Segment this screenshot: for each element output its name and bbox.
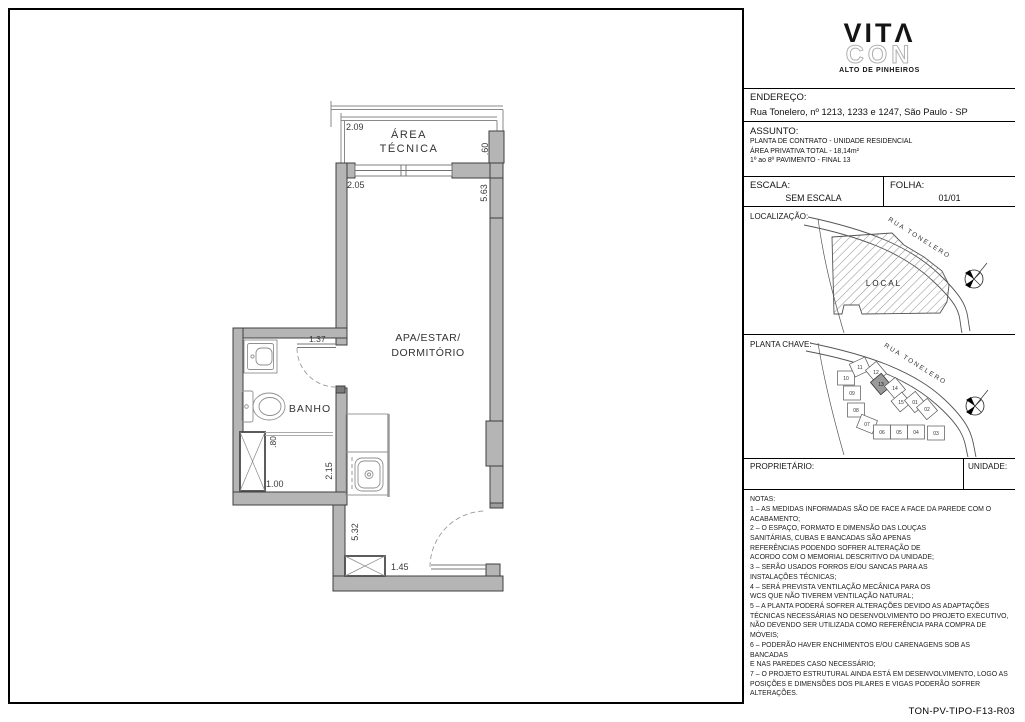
- bath-door: [297, 344, 336, 387]
- living-label-line2: DORMITÓRIO: [391, 346, 464, 359]
- nota-line: NÃO DEVENDO SER UTILIZADA COMO REFERÊNCI…: [750, 621, 1009, 631]
- north-compass-icon: [965, 263, 987, 288]
- logo-con-text: CON: [846, 45, 914, 66]
- localizacao-map: LOCAL RUA TONELERO: [744, 207, 1017, 333]
- planta-chave-section: PLANTA CHAVE: 10 11 12 13 14: [744, 335, 1015, 459]
- escala-folha-row: ESCALA: SEM ESCALA FOLHA: 01/01: [744, 177, 1015, 207]
- escala-label: ESCALA:: [750, 180, 877, 191]
- planta-chave-map: 10 11 12 13 14 15 01 02 09 08: [744, 335, 1017, 457]
- vanity-sink: [244, 340, 277, 373]
- escala-cell: ESCALA: SEM ESCALA: [744, 177, 884, 206]
- assunto-line: ÁREA PRIVATIVA TOTAL - 18,14m²: [750, 147, 1009, 156]
- svg-text:12: 12: [873, 370, 879, 376]
- nota-line: ACABAMENTO;: [750, 515, 1009, 525]
- notas-label: NOTAS:: [750, 495, 1009, 505]
- endereco-label: ENDEREÇO:: [750, 92, 1009, 103]
- folha-label: FOLHA:: [890, 180, 1009, 191]
- nota-line: MÓVEIS;: [750, 631, 1009, 641]
- endereco-section: ENDEREÇO: Rua Tonelero, nº 1213, 1233 e …: [744, 89, 1015, 123]
- nota-line: 3 – SERÃO USADOS FORROS E/OU SANCAS PARA…: [750, 563, 1009, 573]
- svg-text:13: 13: [878, 382, 884, 388]
- living-label-line1: APA/ESTAR/: [395, 332, 460, 344]
- kitchen-counter: [346, 414, 389, 497]
- endereco-value: Rua Tonelero, nº 1213, 1233 e 1247, São …: [750, 107, 1009, 117]
- nota-line: ALTERAÇÕES.: [750, 689, 1009, 699]
- svg-text:15: 15: [898, 400, 904, 406]
- title-block: VITΛ CON ALTO DE PINHEIROS ENDEREÇO: Rua…: [742, 8, 1015, 704]
- dim-shower-width: .80: [268, 436, 278, 448]
- svg-text:05: 05: [896, 430, 902, 436]
- dim-bath-width: 1.00: [266, 479, 284, 489]
- assunto-label: ASSUNTO:: [750, 126, 1009, 137]
- folha-value: 01/01: [890, 193, 1009, 203]
- svg-text:01: 01: [912, 400, 918, 406]
- assunto-section: ASSUNTO: PLANTA DE CONTRATO - UNIDADE RE…: [744, 122, 1015, 177]
- shower-box: [240, 432, 265, 491]
- svg-text:07: 07: [864, 422, 870, 428]
- dim-bath-door: 1.37: [309, 334, 326, 344]
- nota-line: 7 – O PROJETO ESTRUTURAL AINDA ESTÁ EM D…: [750, 670, 1009, 680]
- nota-line: INSTALAÇÕES TÉCNICAS;: [750, 573, 1009, 583]
- nota-line: 1 – AS MEDIDAS INFORMADAS SÃO DE FACE A …: [750, 505, 1009, 515]
- assunto-line: 1º ao 8º PAVIMENTO - FINAL 13: [750, 156, 1009, 165]
- nota-line: SANITÁRIAS, CUBAS E BANCADAS SÃO APENAS: [750, 534, 1009, 544]
- entry-door: [430, 511, 486, 569]
- proprietario-label: PROPRIETÁRIO:: [750, 462, 957, 471]
- proprietario-row: PROPRIETÁRIO: UNIDADE:: [744, 459, 1015, 490]
- site-area-label: LOCAL: [866, 279, 902, 288]
- window: [355, 165, 452, 176]
- unidade-label: UNIDADE:: [968, 462, 1011, 471]
- area-tecnica-label-line2: TÉCNICA: [380, 142, 439, 155]
- drawing-code: TON-PV-TIPO-F13-R03: [909, 706, 1015, 717]
- nota-line: POSIÇÕES E DIMENSÕES DOS PILARES E VIGAS…: [750, 680, 1009, 690]
- area-tecnica-label-line1: ÁREA: [391, 128, 427, 141]
- bath-partition-line: [265, 433, 333, 436]
- localizacao-section: LOCALIZAÇÃO: LOCAL RUA TONELERO: [744, 207, 1015, 335]
- dim-corridor-length: 5.32: [350, 523, 360, 541]
- nota-line: 4 – SERÁ PREVISTA VENTILAÇÃO MECÂNICA PA…: [750, 583, 1009, 593]
- drawing-sheet: ÁREA TÉCNICA APA/ESTAR/ DORMITÓRIO BANHO…: [0, 0, 1025, 722]
- dim-room-width: 2.05: [347, 180, 365, 190]
- assunto-line: PLANTA DE CONTRATO - UNIDADE RESIDENCIAL: [750, 137, 1009, 146]
- nota-line: ACORDO COM O MEMORIAL DESCRITIVO DA UNID…: [750, 553, 1009, 563]
- floor-plan: ÁREA TÉCNICA APA/ESTAR/ DORMITÓRIO BANHO…: [0, 0, 742, 722]
- toilet: [242, 391, 285, 422]
- north-compass-icon: [966, 390, 988, 415]
- nota-line: 5 – A PLANTA PODERÁ SOFRER ALTERAÇÕES DE…: [750, 602, 1009, 612]
- escala-value: SEM ESCALA: [750, 193, 877, 203]
- svg-text:03: 03: [933, 431, 939, 437]
- bath-label: BANHO: [289, 403, 331, 415]
- localizacao-label: LOCALIZAÇÃO:: [750, 212, 808, 221]
- logo-tagline: ALTO DE PINHEIROS: [839, 67, 920, 74]
- nota-line: WCS QUE NÃO TIVEREM VENTILAÇÃO NATURAL;: [750, 592, 1009, 602]
- proprietario-cell: PROPRIETÁRIO:: [744, 459, 964, 489]
- folha-cell: FOLHA: 01/01: [884, 177, 1015, 206]
- lot-boundary: [818, 343, 844, 455]
- svg-text:14: 14: [892, 386, 898, 392]
- svg-text:04: 04: [913, 430, 919, 436]
- dim-right-depth: .60: [480, 143, 490, 156]
- dim-entry-width: 1.45: [391, 562, 409, 572]
- nota-line: E NAS PAREDES CASO NECESSÁRIO;: [750, 660, 1009, 670]
- svg-text:11: 11: [857, 365, 862, 371]
- svg-text:02: 02: [924, 407, 930, 413]
- svg-text:06: 06: [879, 430, 885, 436]
- nota-line: REFERÊNCIAS PODENDO SOFRER ALTERAÇÃO DE: [750, 544, 1009, 554]
- nota-line: 6 – PODERÃO HAVER ENCHIMENTOS E/OU CAREN…: [750, 641, 1009, 660]
- dim-room-length: 5.63: [479, 184, 489, 202]
- nota-line: 2 – O ESPAÇO, FORMATO E DIMENSÃO DAS LOU…: [750, 524, 1009, 534]
- planta-chave-label: PLANTA CHAVE:: [750, 340, 812, 349]
- svg-text:09: 09: [849, 391, 855, 397]
- nota-line: TÉCNICAS NECESSÁRIAS NO DESENVOLVIMENTO …: [750, 612, 1009, 622]
- unidade-cell: UNIDADE:: [964, 459, 1015, 489]
- svg-text:08: 08: [853, 408, 859, 414]
- duct-box: [345, 556, 385, 576]
- svg-text:10: 10: [843, 376, 849, 382]
- notas-section: NOTAS: 1 – AS MEDIDAS INFORMADAS SÃO DE …: [744, 490, 1015, 704]
- dim-top-setback: 2.09: [346, 122, 364, 132]
- dim-bath-length: 2.15: [324, 462, 334, 480]
- logo: VITΛ CON ALTO DE PINHEIROS: [744, 8, 1015, 89]
